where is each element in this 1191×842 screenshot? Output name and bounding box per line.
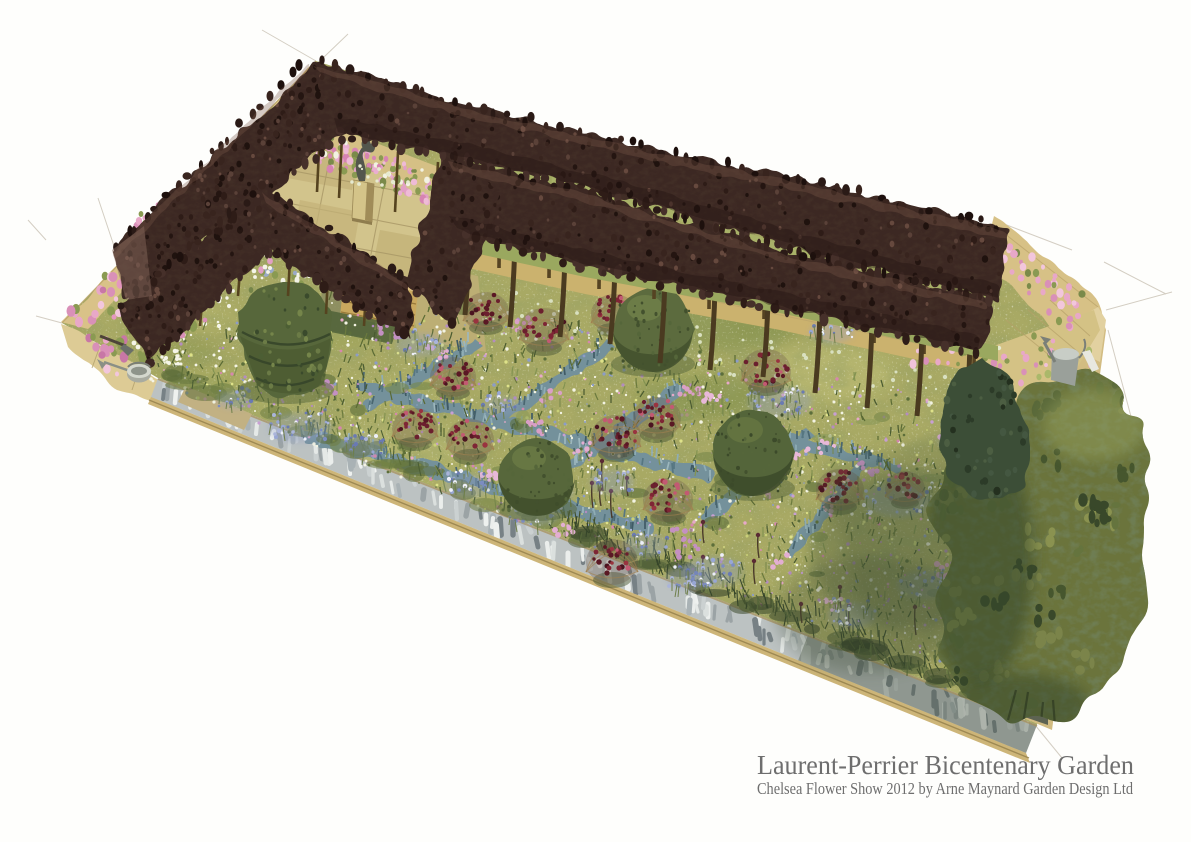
svg-text:Chelsea Flower Show 2012 by A: Chelsea Flower Show 2012 by Arne Maynard… xyxy=(757,779,1134,798)
svg-text:Laurent-Perrier Bicentenary Ga: Laurent-Perrier Bicentenary Garden xyxy=(757,750,1134,780)
